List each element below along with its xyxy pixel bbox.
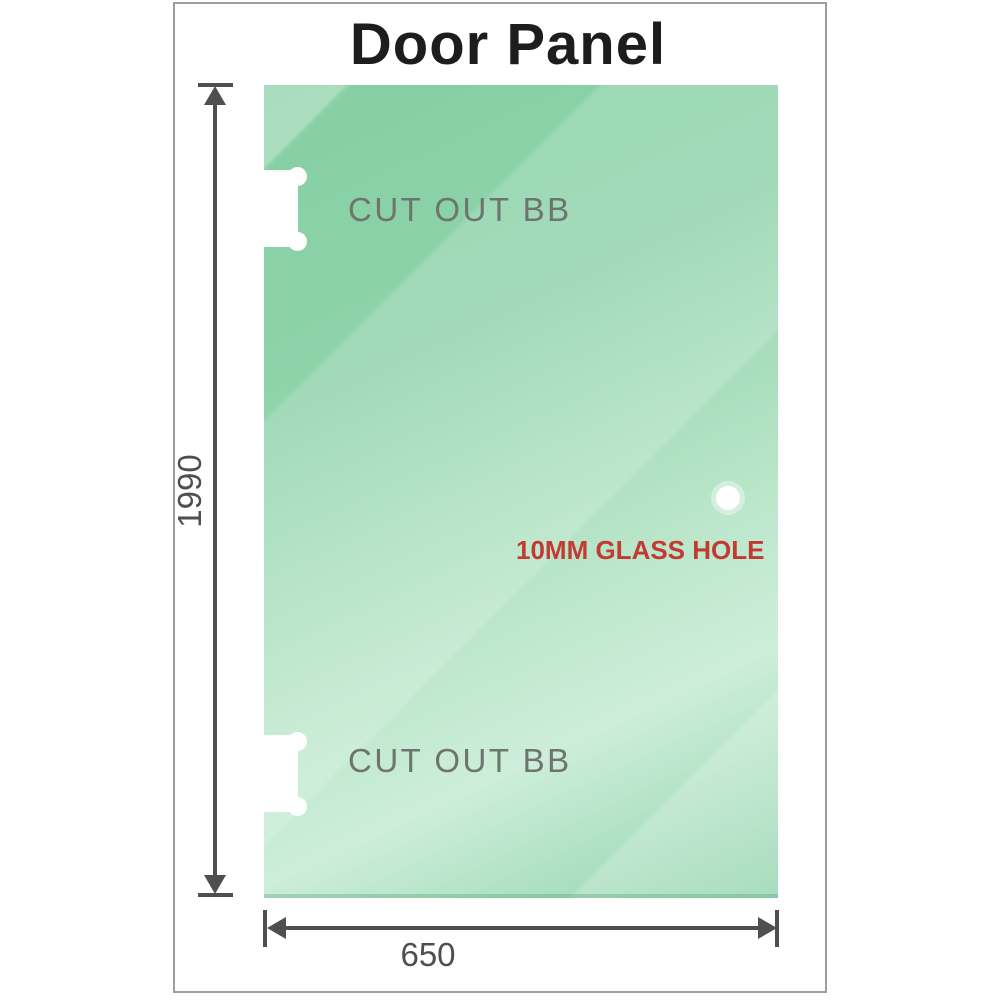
hinge-cutout-top-knob-upper — [288, 167, 307, 186]
arrow-left-icon — [267, 917, 286, 939]
glass-panel: CUT OUT BB CUT OUT BB 10MM GLASS HOLE — [264, 85, 778, 898]
arrow-right-icon — [758, 917, 777, 939]
height-dimension-value: 1990 — [170, 431, 210, 551]
diagram-canvas: Door Panel CUT OUT BB CUT OUT BB 10MM GL… — [0, 0, 1000, 1000]
glass-hole-label: 10MM GLASS HOLE — [516, 535, 764, 566]
cutout-bottom-label: CUT OUT BB — [348, 742, 572, 780]
page-title: Door Panel — [181, 11, 835, 78]
hinge-cutout-top — [264, 167, 307, 253]
cutout-top-label: CUT OUT BB — [348, 191, 572, 229]
hinge-cutout-top-knob-lower — [288, 232, 307, 251]
arrow-down-icon — [204, 875, 226, 894]
hinge-cutout-bottom — [264, 732, 307, 818]
glass-hole — [716, 486, 740, 510]
arrow-up-icon — [204, 86, 226, 105]
hinge-cutout-bottom-knob-upper — [288, 732, 307, 751]
width-dimension-line — [278, 926, 765, 930]
height-dimension-line — [213, 95, 217, 885]
width-dimension-value: 650 — [388, 936, 468, 974]
hinge-cutout-bottom-knob-lower — [288, 797, 307, 816]
